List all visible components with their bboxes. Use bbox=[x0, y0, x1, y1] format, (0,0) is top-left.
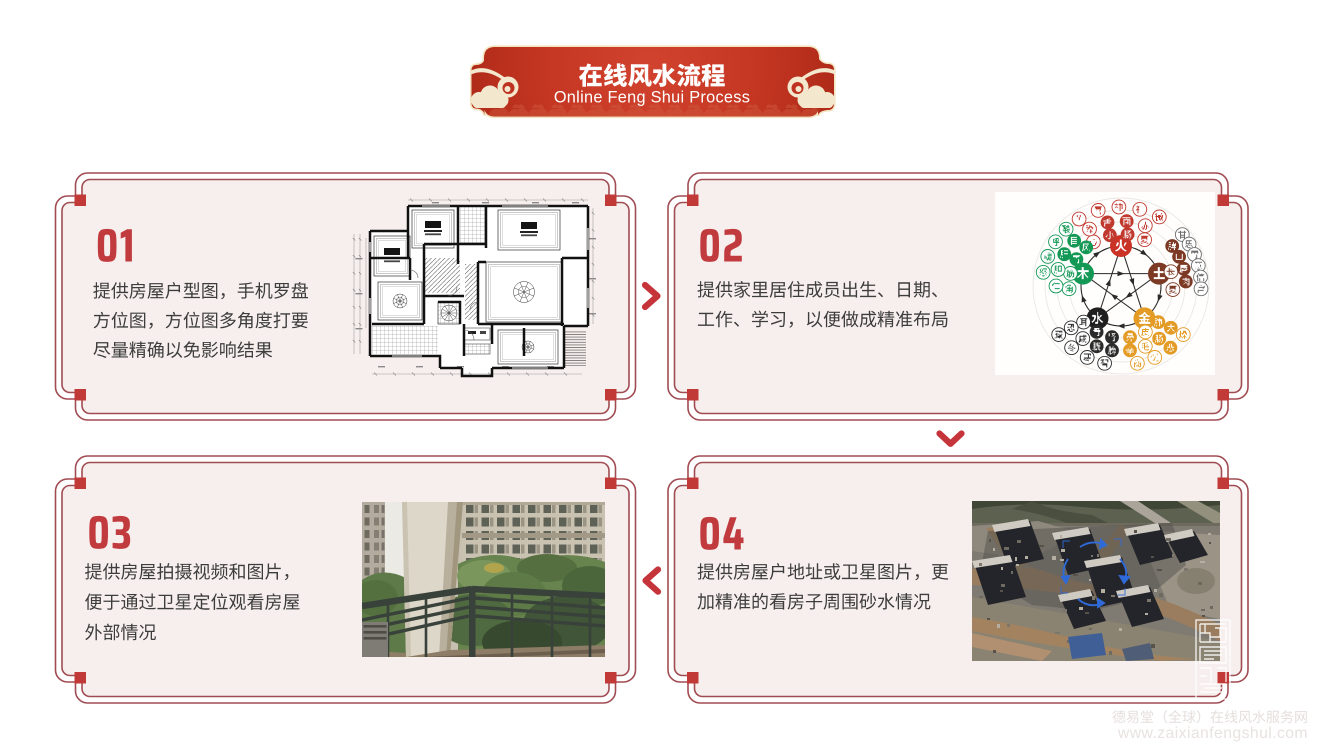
svg-text:Online Feng Shui Process: Online Feng Shui Process bbox=[554, 89, 750, 107]
svg-text:www.zaixianfengshul.com: www.zaixianfengshul.com bbox=[1117, 725, 1308, 742]
